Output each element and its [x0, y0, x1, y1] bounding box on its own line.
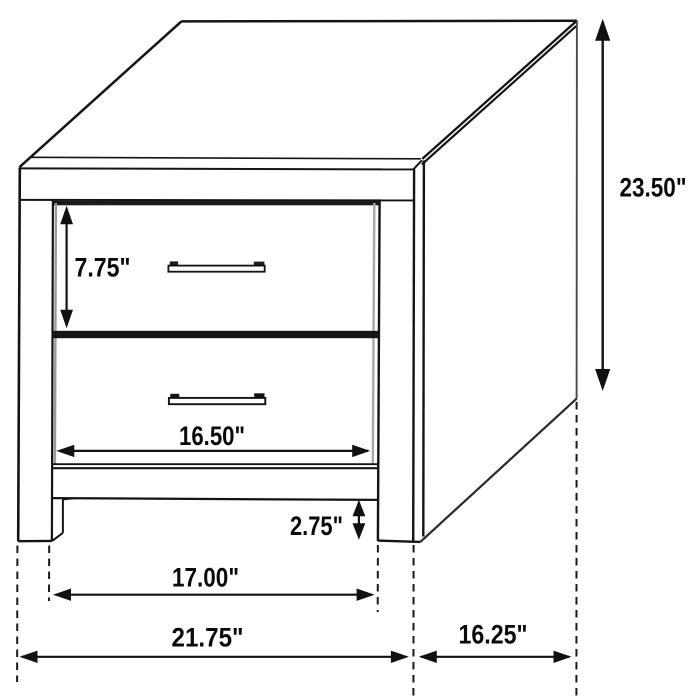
svg-text:7.75": 7.75" [75, 253, 131, 283]
svg-text:23.50": 23.50" [620, 173, 687, 203]
svg-text:16.50": 16.50" [179, 421, 245, 451]
svg-text:17.00": 17.00" [172, 563, 239, 593]
svg-text:21.75": 21.75" [172, 623, 244, 653]
svg-text:16.25": 16.25" [459, 620, 528, 650]
svg-text:2.75": 2.75" [290, 511, 343, 541]
